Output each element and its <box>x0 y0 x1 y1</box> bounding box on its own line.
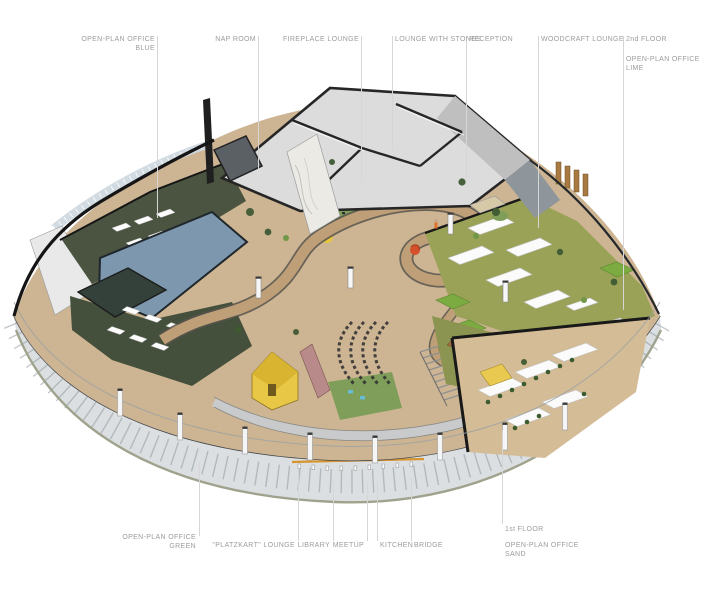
leader-line-nap-room <box>258 36 259 170</box>
axonometric-diagram-page: OPEN-PLAN OFFICE BLUE NAP ROOM FIREPLACE… <box>0 0 720 602</box>
leader-line-platzkart-lounge <box>298 470 299 541</box>
leader-line-meetup <box>367 482 368 541</box>
label-line: NAP ROOM <box>215 36 256 43</box>
label-1st-floor: 1st FLOOR <box>505 526 544 535</box>
leader-line-2nd-floor-lime <box>623 36 624 310</box>
label-reception: RECEPTION <box>469 36 513 45</box>
label-line: KITCHEN <box>380 542 413 549</box>
label-kitchen: KITCHEN <box>380 542 413 551</box>
label-line: 2nd FLOOR <box>626 36 667 43</box>
label-line: BLUE <box>135 45 155 52</box>
axonometric-floor-plan-illustration <box>0 0 720 602</box>
leader-line-blue <box>157 36 158 218</box>
leader-line-reception <box>466 36 467 178</box>
label-line: GREEN <box>169 543 196 550</box>
label-line: WOODCRAFT LOUNGE <box>541 36 624 43</box>
label-line: 1st FLOOR <box>505 526 544 533</box>
label-line: RECEPTION <box>469 36 513 43</box>
office-sand-zone <box>452 318 650 458</box>
label-fireplace-lounge: FIREPLACE LOUNGE <box>283 36 359 45</box>
leader-line-fireplace-lounge <box>361 36 362 182</box>
label-open-plan-office-sand: OPEN-PLAN OFFICE SAND <box>505 542 579 559</box>
label-meetup: MEETUP <box>333 542 364 551</box>
label-nap-room: NAP ROOM <box>215 36 256 45</box>
label-library: LIBRARY <box>298 542 330 551</box>
leader-line-library <box>333 480 334 541</box>
red-lounge-chair <box>410 245 420 255</box>
leader-line-green <box>199 462 200 536</box>
label-line: OPEN-PLAN OFFICE <box>626 56 700 63</box>
label-line: OPEN-PLAN OFFICE <box>81 36 155 43</box>
label-line: BRIDGE <box>414 542 443 549</box>
label-2nd-floor: 2nd FLOOR <box>626 36 667 45</box>
label-open-plan-office-lime: OPEN-PLAN OFFICE LIME <box>626 56 700 73</box>
label-open-plan-office-green: OPEN-PLAN OFFICE GREEN <box>122 534 196 551</box>
label-woodcraft-lounge: WOODCRAFT LOUNGE <box>541 36 624 45</box>
label-line: MEETUP <box>333 542 364 549</box>
label-line: FIREPLACE LOUNGE <box>283 36 359 43</box>
leader-line-woodcraft-lounge <box>538 36 539 228</box>
leader-line-kitchen <box>377 482 378 541</box>
label-line: OPEN-PLAN OFFICE <box>122 534 196 541</box>
label-line: SAND <box>505 551 526 558</box>
label-line: "PLATZKART" LOUNGE <box>212 542 295 549</box>
label-line: OPEN-PLAN OFFICE <box>505 542 579 549</box>
label-platzkart-lounge: "PLATZKART" LOUNGE <box>212 542 295 551</box>
label-line: LIBRARY <box>298 542 330 549</box>
label-line: LIME <box>626 65 644 72</box>
label-bridge: BRIDGE <box>414 542 443 551</box>
leader-line-lounge-with-stones <box>392 36 393 150</box>
person-figure <box>434 219 437 228</box>
leader-line-bridge <box>411 478 412 541</box>
leader-line-1st-floor-sand <box>502 430 503 524</box>
label-open-plan-office-blue: OPEN-PLAN OFFICE BLUE <box>81 36 155 53</box>
